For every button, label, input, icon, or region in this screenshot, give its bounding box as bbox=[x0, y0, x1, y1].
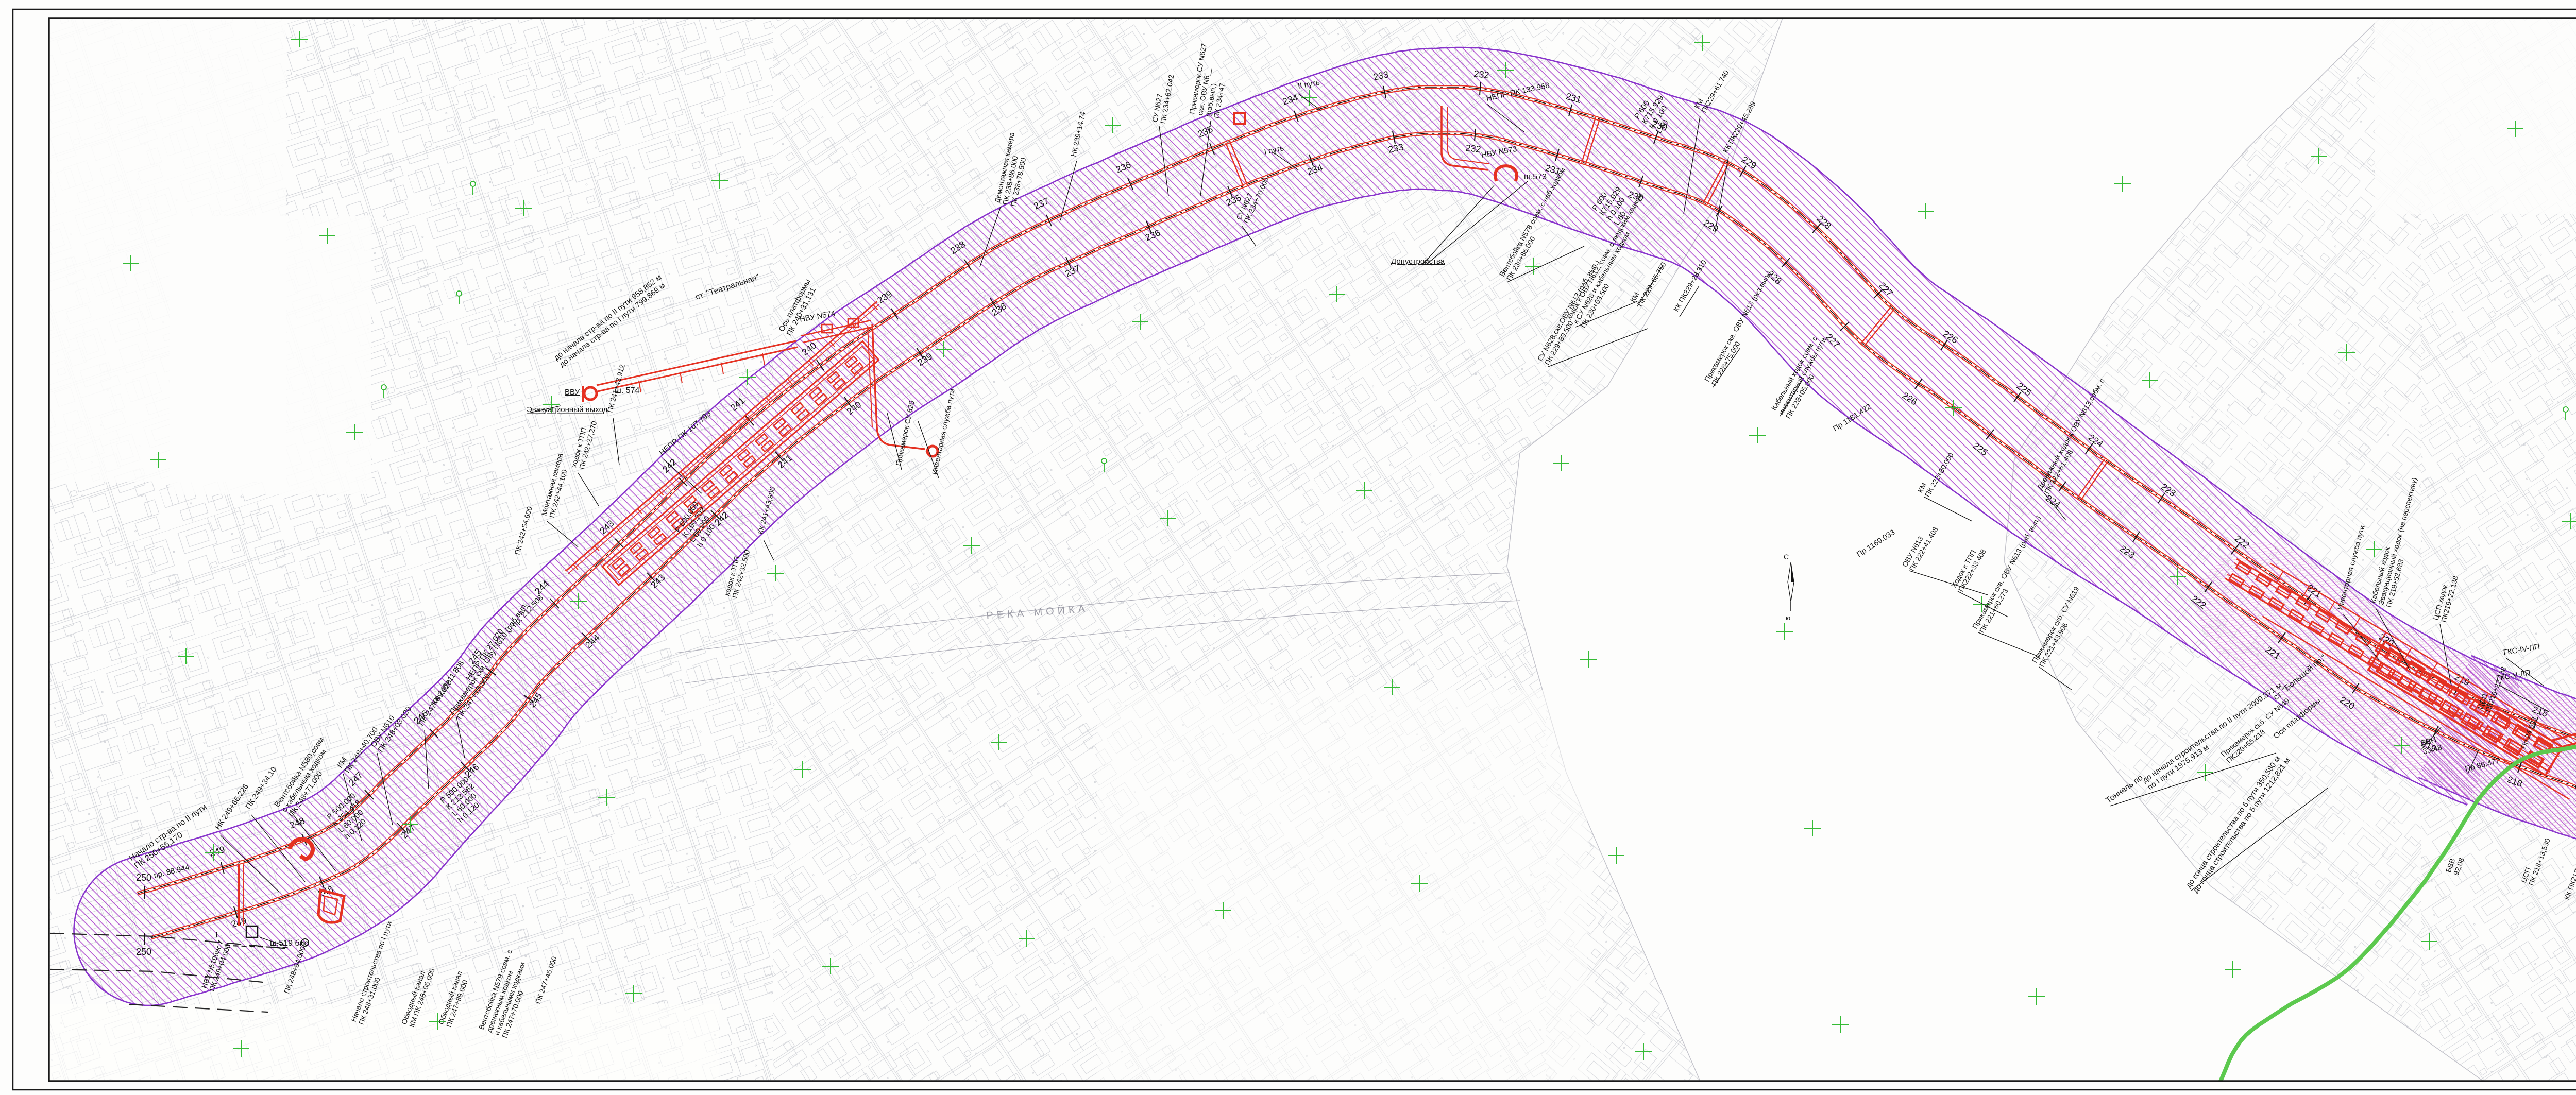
svg-text:250: 250 bbox=[136, 947, 151, 957]
svg-text:С: С bbox=[1784, 553, 1789, 561]
svg-text:Эвакуационный выход: Эвакуационный выход bbox=[527, 405, 608, 414]
svg-text:232: 232 bbox=[1465, 143, 1482, 155]
svg-text:ю: ю bbox=[1786, 614, 1790, 622]
svg-text:ВВУ: ВВУ bbox=[565, 388, 580, 397]
svg-text:Допустройства: Допустройства bbox=[1391, 257, 1445, 266]
svg-text:250: 250 bbox=[136, 872, 151, 883]
svg-text:ш.573: ш.573 bbox=[1524, 173, 1547, 181]
svg-text:232: 232 bbox=[1473, 69, 1490, 80]
